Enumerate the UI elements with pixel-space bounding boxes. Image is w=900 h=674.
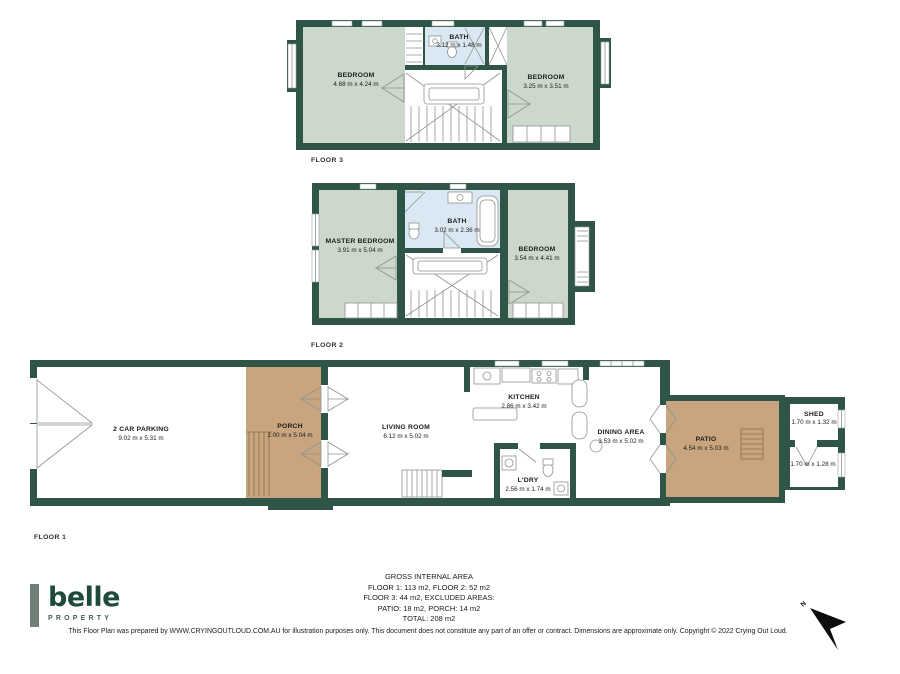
floor-2-plan: MASTER BEDROOM 3.91 m x 5.04 m BATH 3.02… bbox=[311, 183, 595, 349]
parking-dims: 9.02 m x 5.31 m bbox=[118, 435, 163, 442]
master-bedroom-label: MASTER BEDROOM bbox=[326, 238, 395, 245]
porch-dims: 2.00 m x 5.04 m bbox=[267, 432, 312, 439]
living-label: LIVING ROOM bbox=[382, 424, 430, 431]
belle-property-logo: belle PROPERTY bbox=[30, 584, 120, 627]
floor-3-label: FLOOR 3 bbox=[311, 157, 343, 164]
brand-name: belle bbox=[48, 584, 120, 611]
floor2-master-bedroom-room bbox=[319, 190, 397, 318]
floor3-right-bay-window bbox=[597, 38, 611, 88]
north-label: N bbox=[800, 600, 808, 609]
living-dims: 6.12 m x 5.02 m bbox=[383, 433, 428, 440]
disclaimer-text: This Floor Plan was prepared by WWW.CRYI… bbox=[28, 628, 828, 635]
laundry-dims: 2.56 m x 1.74 m bbox=[505, 486, 550, 493]
summary-title: GROSS INTERNAL AREA bbox=[229, 572, 629, 583]
floor3-left-bay-window bbox=[287, 40, 299, 92]
floor2-bedroom-dims: 3.54 m x 4.41 m bbox=[514, 255, 559, 262]
summary-line-1: FLOOR 1: 113 m2, FLOOR 2: 52 m2 bbox=[229, 583, 629, 594]
store-dims: 1.70 m x 1.28 m bbox=[790, 461, 835, 468]
parking-label: 2 CAR PARKING bbox=[113, 426, 169, 433]
dining-wall-stub bbox=[583, 367, 589, 380]
floor-3-plan: BEDROOM 4.68 m x 4.24 m BATH 3.12 m x 1.… bbox=[287, 20, 611, 164]
summary-line-3: PATIO: 18 m2, PORCH: 14 m2 bbox=[229, 604, 629, 615]
patio-label: PATIO bbox=[696, 436, 717, 443]
bedroom-left-dims: 4.68 m x 4.24 m bbox=[333, 81, 378, 88]
floor-1-label: FLOOR 1 bbox=[34, 534, 66, 541]
area-summary: GROSS INTERNAL AREA FLOOR 1: 113 m2, FLO… bbox=[229, 572, 629, 625]
bath-dims: 3.12 m x 1.48 m bbox=[436, 42, 481, 49]
patio-dims: 4.54 m x 5.03 m bbox=[683, 445, 728, 452]
porch-step-wall bbox=[268, 498, 333, 510]
floor-plan-page: BEDROOM 4.68 m x 4.24 m BATH 3.12 m x 1.… bbox=[0, 0, 900, 674]
north-arrow-icon: N bbox=[800, 600, 846, 650]
floor2-bath-dims: 3.02 m x 2.36 m bbox=[434, 227, 479, 234]
bedroom-right-dims: 3.25 m x 3.51 m bbox=[523, 83, 568, 90]
kitchen-label: KITCHEN bbox=[508, 394, 540, 401]
laundry-label: L'DRY bbox=[518, 477, 539, 484]
bath-label: BATH bbox=[449, 34, 468, 41]
floor-1-plan: 2 CAR PARKING 9.02 m x 5.31 m PORCH 2.00… bbox=[30, 360, 845, 541]
floor2-bedroom-label: BEDROOM bbox=[519, 246, 556, 253]
kitchen-dims: 2.86 m x 3.42 m bbox=[501, 403, 546, 410]
shed-dims: 1.70 m x 1.32 m bbox=[791, 419, 836, 426]
floor3-top-windows bbox=[332, 21, 564, 26]
summary-line-4: TOTAL: 208 m2 bbox=[229, 614, 629, 625]
dining-label: DINING AREA bbox=[598, 429, 645, 436]
shed-label: SHED bbox=[804, 411, 824, 418]
dining-dims: 3.53 m x 5.02 m bbox=[598, 438, 643, 445]
floor-2-label: FLOOR 2 bbox=[311, 342, 343, 349]
dining-window bbox=[600, 361, 644, 366]
floor2-bay-window bbox=[575, 221, 595, 292]
bedroom-left-label: BEDROOM bbox=[338, 72, 375, 79]
logo-bar bbox=[30, 584, 39, 627]
summary-line-2: FLOOR 3: 44 m2, EXCLUDED AREAS: bbox=[229, 593, 629, 604]
kitchen-wall-stub bbox=[464, 367, 470, 392]
floor3-built-in-wardrobe bbox=[513, 126, 570, 142]
bedroom-right-label: BEDROOM bbox=[528, 74, 565, 81]
porch-label: PORCH bbox=[277, 423, 303, 430]
floor2-bath-label: BATH bbox=[447, 218, 466, 225]
master-bedroom-dims: 3.91 m x 5.04 m bbox=[337, 247, 382, 254]
brand-tagline: PROPERTY bbox=[48, 615, 120, 622]
floor3-linen-closet bbox=[405, 27, 423, 65]
